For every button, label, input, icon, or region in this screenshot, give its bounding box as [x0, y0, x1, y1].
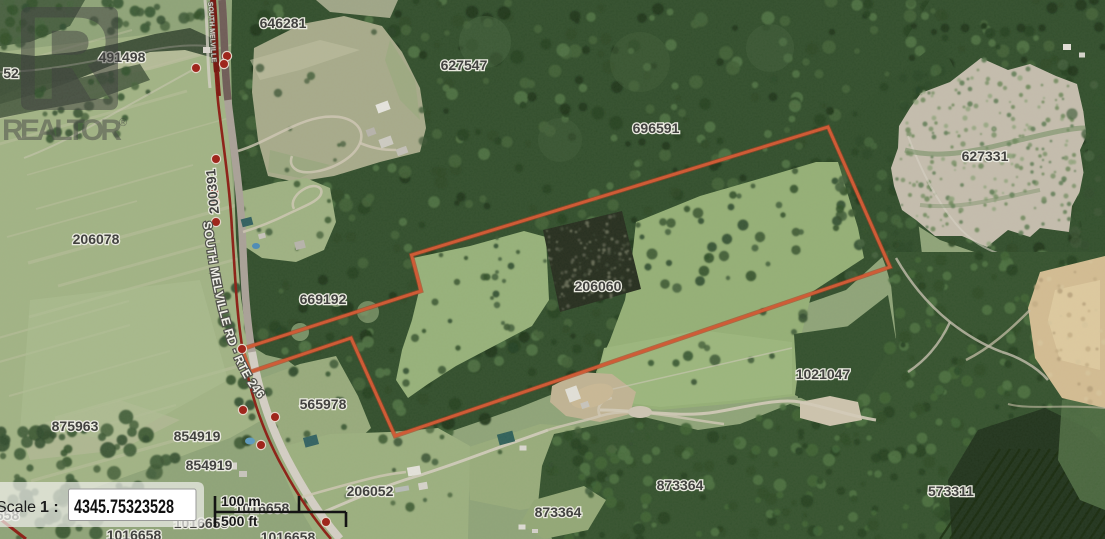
- svg-text:4345.75323528: 4345.75323528: [74, 497, 174, 518]
- svg-text:500 ft: 500 ft: [221, 513, 258, 529]
- svg-text:1 :: 1 :: [40, 499, 59, 516]
- svg-text:Scale: Scale: [0, 499, 36, 516]
- svg-text:100 m: 100 m: [221, 493, 261, 509]
